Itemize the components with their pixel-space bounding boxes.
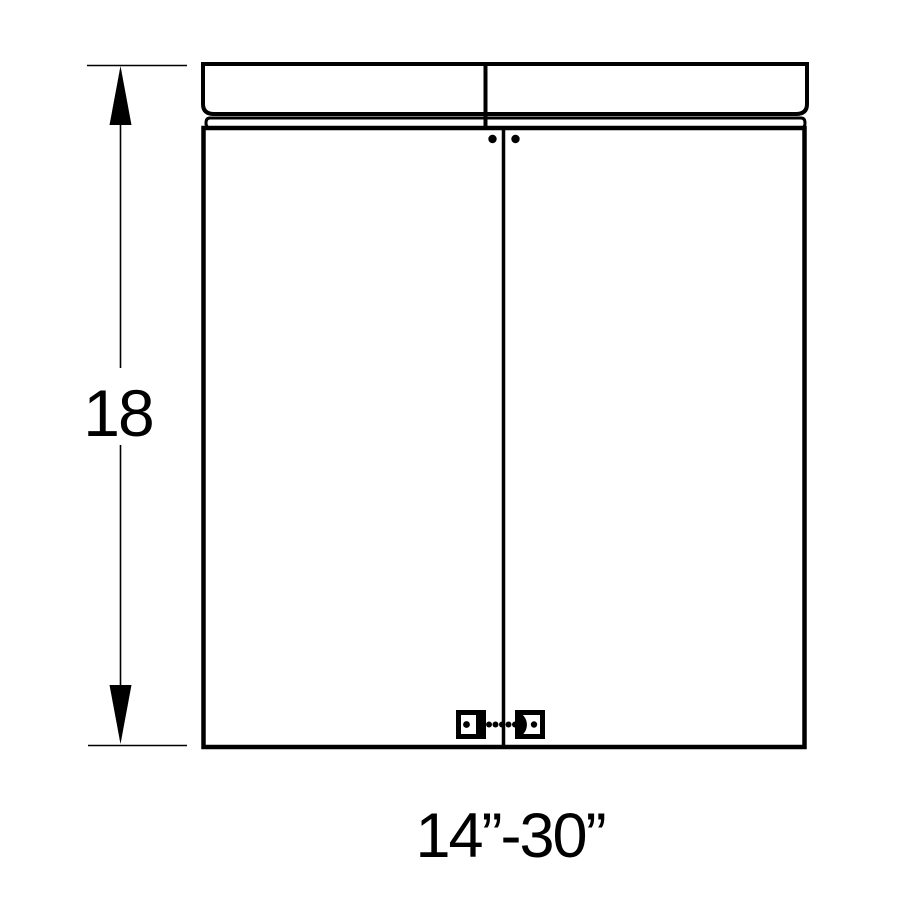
arrowhead-up-icon xyxy=(110,66,132,125)
right-door-pin-icon xyxy=(511,135,519,143)
height-dimension-label: 18 xyxy=(83,376,152,450)
cabinet-dimension-diagram: 18 xyxy=(0,0,900,900)
spring-coil-dot xyxy=(506,722,512,728)
spring-coil-dot xyxy=(493,722,499,728)
drawing-canvas: 18 xyxy=(0,0,900,900)
cabinet-lid xyxy=(203,64,807,114)
spring-coil-dot xyxy=(486,722,492,728)
height-dimension: 18 xyxy=(83,66,187,746)
latch-spring-rod xyxy=(486,722,518,728)
left-door-pin-icon xyxy=(488,135,496,143)
width-range-label: 14”-30” xyxy=(415,801,604,871)
latch-left-screw-icon xyxy=(463,721,470,728)
latch-right-screw-icon xyxy=(531,721,537,727)
latch-lever-bar xyxy=(476,712,486,738)
arrowhead-down-icon xyxy=(110,685,132,744)
spring-coil-dot xyxy=(499,722,505,728)
